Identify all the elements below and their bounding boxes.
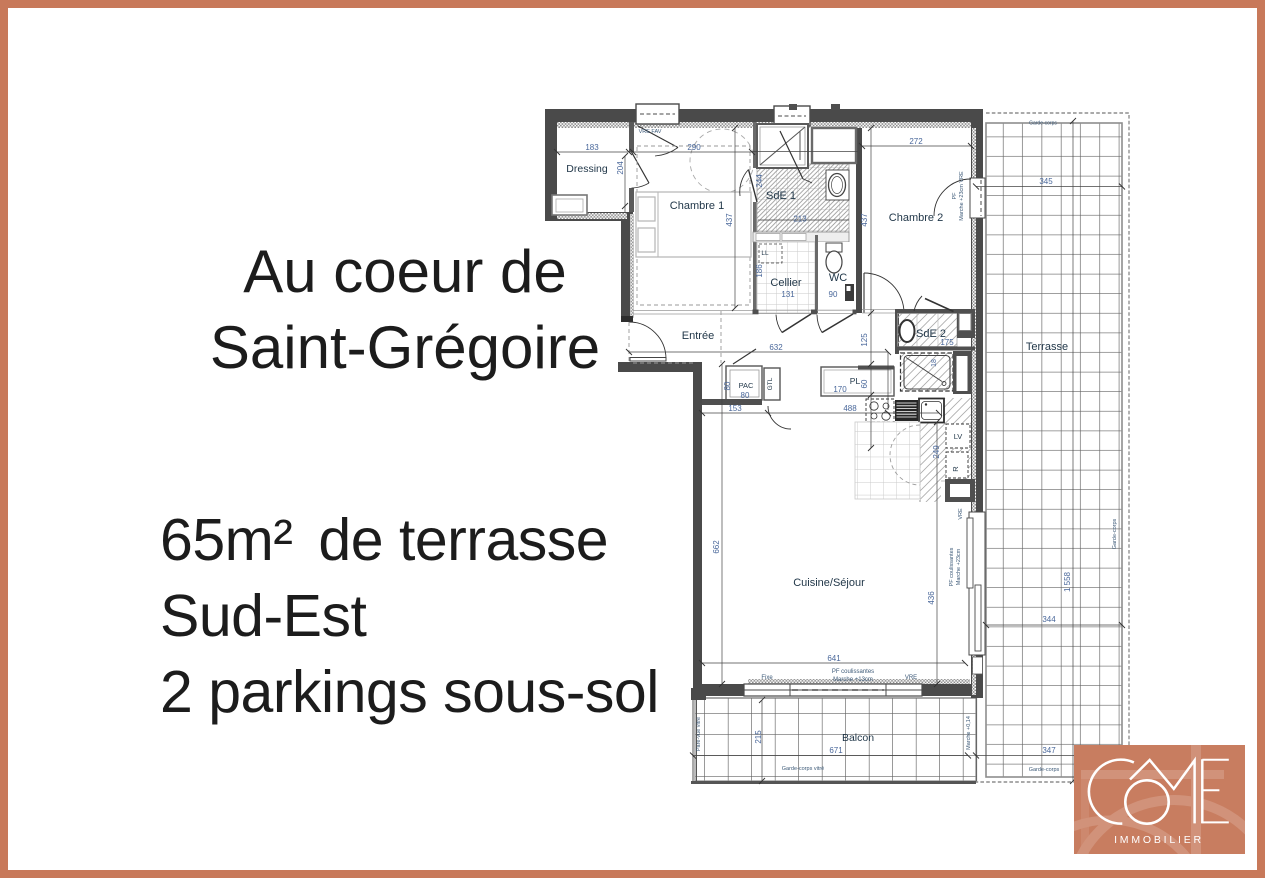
svg-text:80: 80 [723,381,732,390]
svg-text:344: 344 [1042,615,1056,624]
svg-text:632: 632 [769,343,783,352]
svg-text:671: 671 [829,746,843,755]
svg-text:215: 215 [754,730,763,744]
svg-text:153: 153 [728,404,742,413]
svg-text:Garde-corps: Garde-corps [1029,767,1060,773]
svg-text:PAC: PAC [739,381,754,390]
svg-text:Cuisine/Séjour: Cuisine/Séjour [793,577,865,589]
svg-text:PF: PF [952,192,958,200]
svg-text:IMMOBILIER: IMMOBILIER [1114,834,1204,846]
svg-text:Marche +13cm: Marche +13cm [833,677,873,683]
svg-text:Garde-corps: Garde-corps [1029,121,1057,127]
svg-text:488: 488 [843,404,857,413]
svg-text:272: 272 [909,137,923,146]
svg-text:Marche +23cm VRE: Marche +23cm VRE [959,171,965,221]
svg-text:437: 437 [860,213,869,227]
svg-text:170: 170 [833,385,847,394]
svg-text:436: 436 [927,591,936,605]
svg-text:347: 347 [1042,746,1056,755]
svg-text:Chambre 2: Chambre 2 [889,212,943,224]
svg-text:R: R [951,466,960,472]
svg-text:VRE: VRE [905,675,917,681]
svg-text:641: 641 [827,654,841,663]
svg-text:Marche +23cm: Marche +23cm [956,548,962,585]
svg-text:Fixe: Fixe [761,675,773,681]
svg-text:80: 80 [741,391,750,400]
svg-text:Balcon: Balcon [842,732,874,744]
svg-text:WC: WC [829,272,847,284]
svg-text:345: 345 [1039,177,1053,186]
svg-text:PL: PL [850,376,861,386]
svg-text:VRE FAV: VRE FAV [639,129,662,135]
svg-text:Terrasse: Terrasse [1026,341,1068,353]
svg-text:Garde-corps: Garde-corps [1112,518,1118,549]
svg-text:PF coulissantes: PF coulissantes [832,669,874,675]
svg-text:290: 290 [687,143,701,152]
svg-text:204: 204 [616,161,625,175]
svg-text:Pare-vue vitré: Pare-vue vitré [696,717,702,751]
svg-text:131: 131 [781,290,795,299]
svg-text:662: 662 [712,540,721,554]
svg-text:LL: LL [761,250,769,257]
svg-text:Entrée: Entrée [682,330,714,342]
svg-text:186: 186 [755,264,764,278]
svg-text:244: 244 [755,174,764,188]
svg-text:1 558: 1 558 [1063,571,1072,592]
svg-text:125: 125 [860,333,869,347]
svg-text:Garde-corps vitré: Garde-corps vitré [782,766,825,772]
svg-text:18: 18 [931,359,938,367]
svg-text:PF coulissantes: PF coulissantes [949,547,955,586]
svg-text:60: 60 [860,379,869,388]
svg-text:GTL: GTL [767,377,774,390]
svg-text:Cellier: Cellier [770,277,802,289]
svg-text:90: 90 [829,290,838,299]
svg-text:437: 437 [725,213,734,227]
svg-text:183: 183 [585,143,599,152]
svg-text:Marche +0,14: Marche +0,14 [966,716,972,750]
svg-text:SdE 1: SdE 1 [766,190,796,202]
svg-text:VRE: VRE [958,508,964,520]
svg-text:213: 213 [793,215,807,224]
svg-text:Chambre 1: Chambre 1 [670,200,724,212]
svg-text:Dressing: Dressing [566,163,608,175]
svg-text:LV: LV [954,432,963,441]
svg-text:SdE 2: SdE 2 [916,328,946,340]
svg-text:249: 249 [932,445,941,459]
